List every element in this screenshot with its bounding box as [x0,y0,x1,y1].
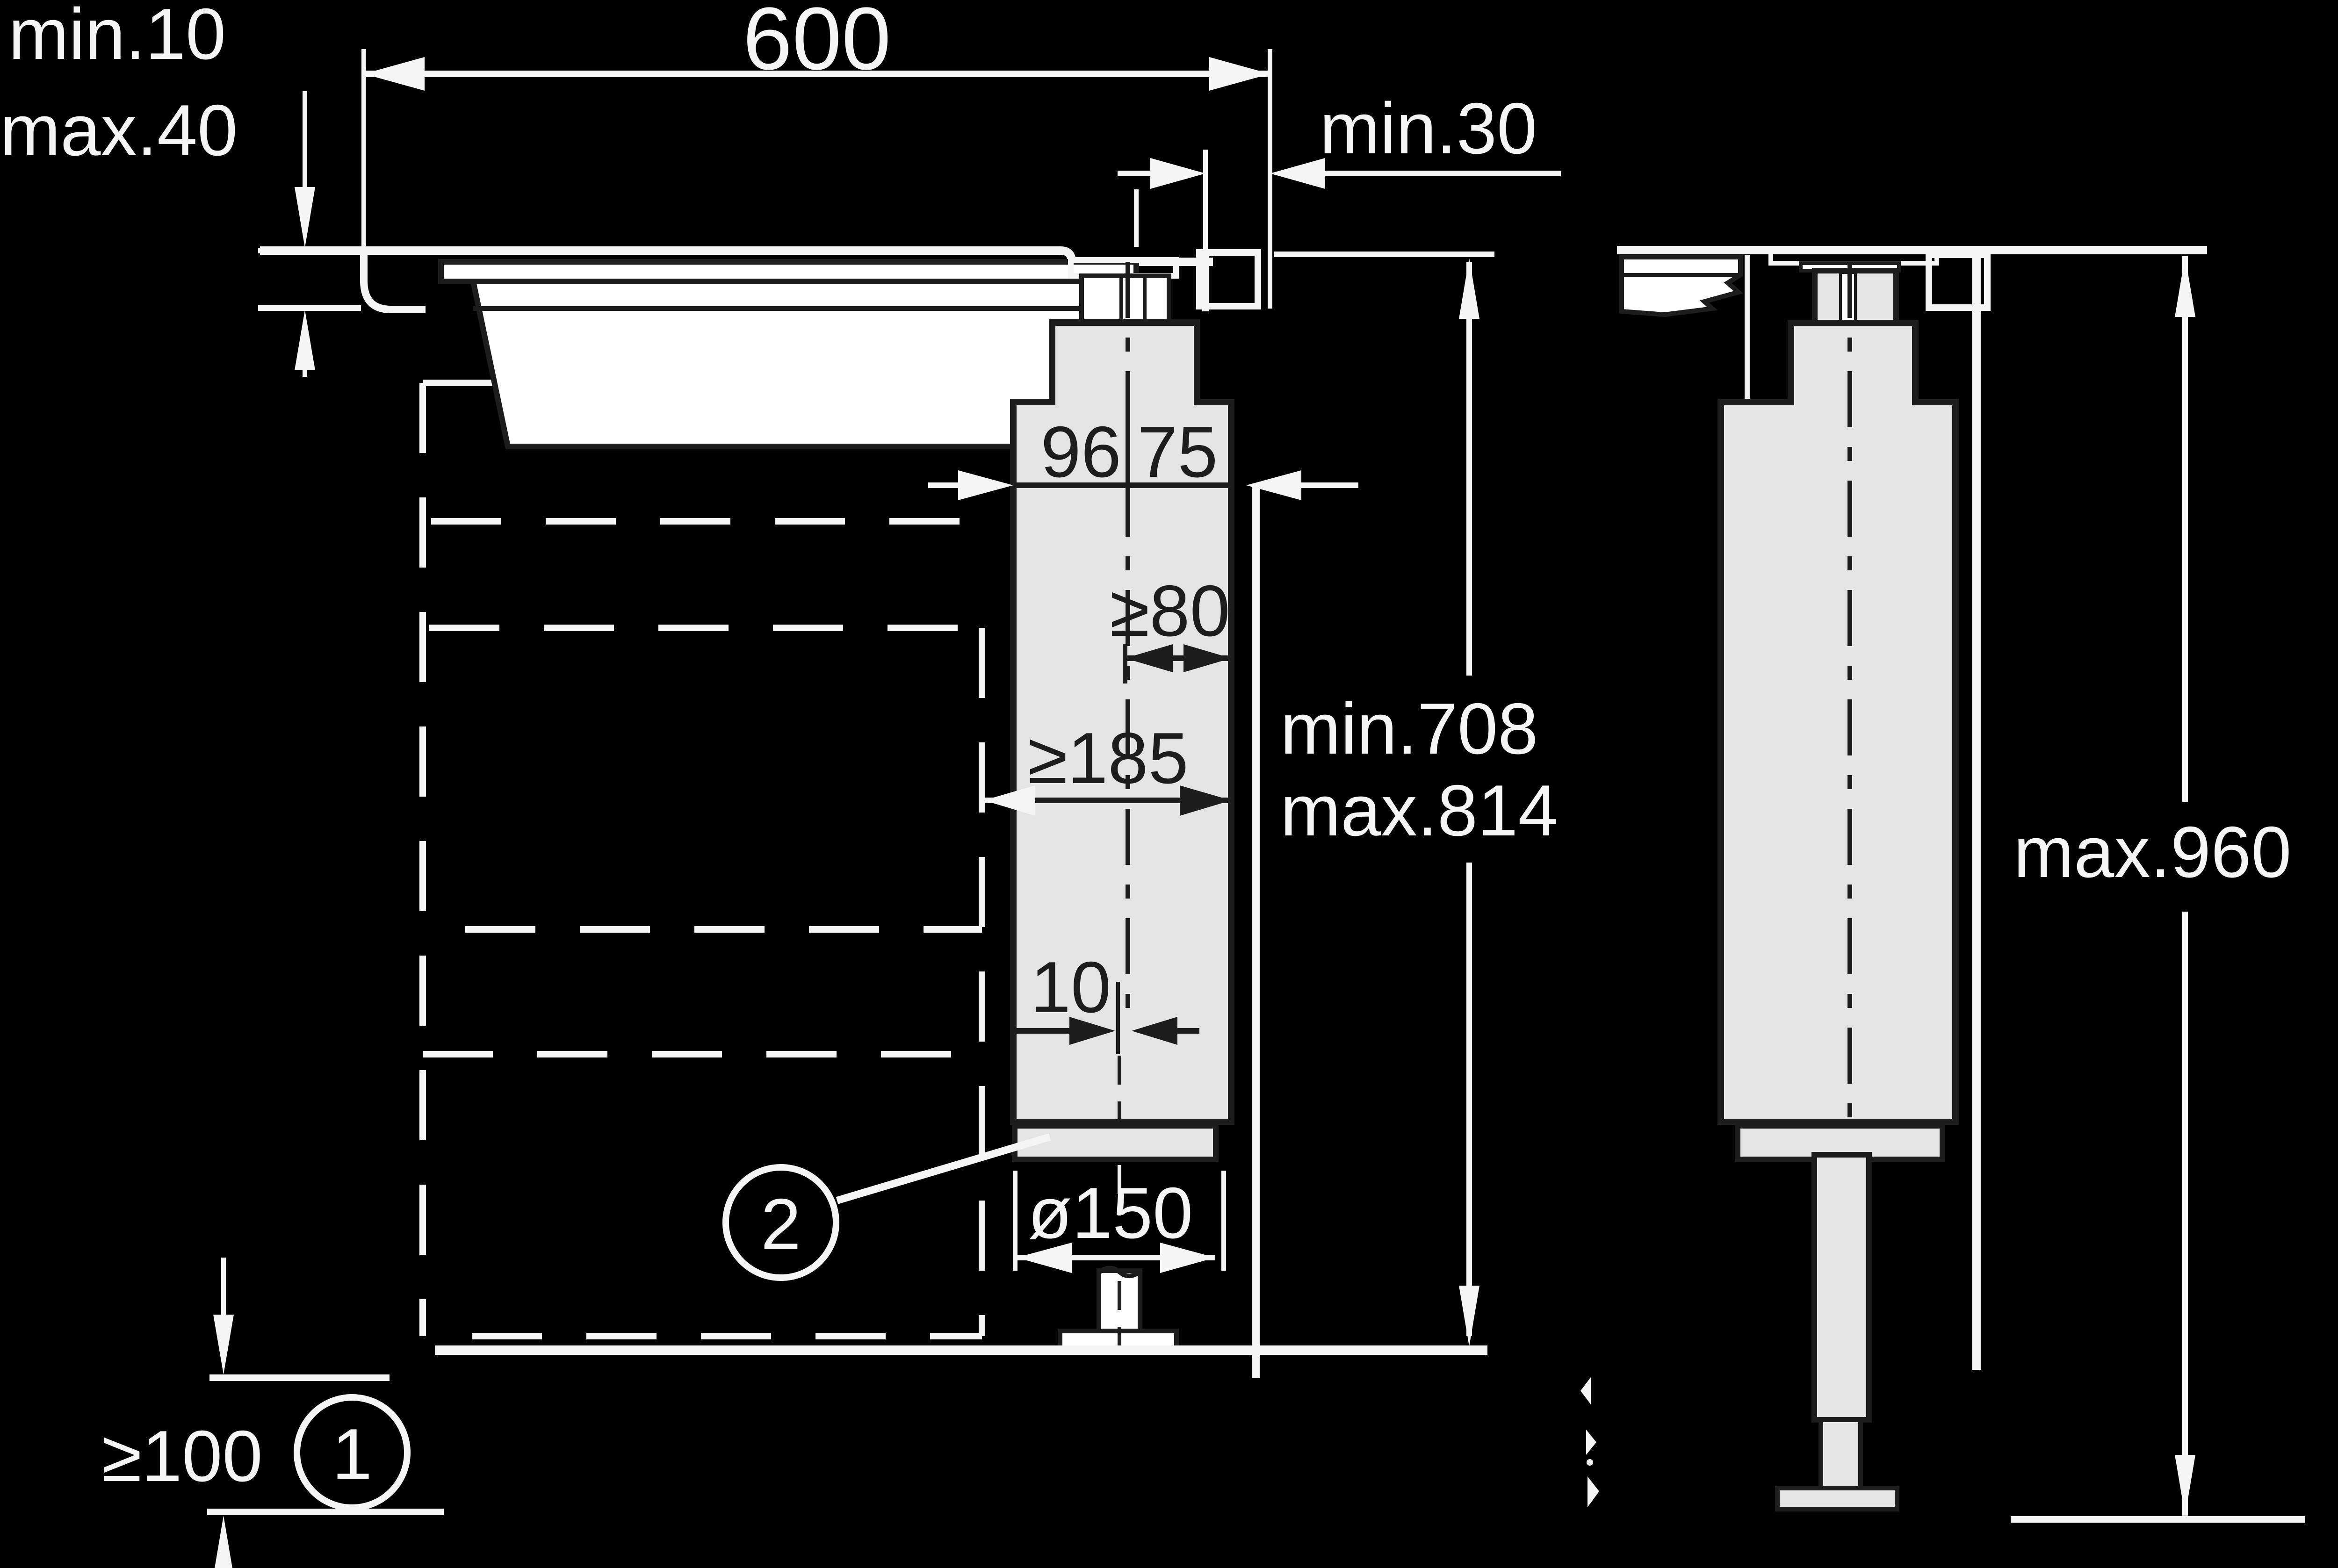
airflow-arrow-right-icon-2 [1588,1476,1599,1507]
dim-185-arrow-left [984,785,1035,816]
callout-2: 2 [726,1137,1050,1278]
dim-min30-arrow-right [1270,158,1325,189]
cabinet-dashed-outline [423,383,982,1336]
dim-min30-arrow-left [1150,158,1205,189]
dimension-install-height: min.708 max.814 [1274,254,1559,1346]
callout-2-label: 2 [761,1184,801,1265]
overall-height-arrow-down [2175,1455,2195,1516]
telescopic-leg-upper [1814,1155,1869,1420]
install-height-arrow-down [1459,1286,1479,1346]
callout-1-label: 1 [332,1414,372,1495]
dim-600-arrow-right [1209,57,1270,91]
dimension-plinth-height: ≥100 1 [102,1258,444,1568]
dim-600-arrow-left [364,57,425,91]
dim-min30-label: min.30 [1320,88,1537,169]
dim-185-label: ≥185 [1028,718,1189,798]
dim-10-label: 10 [1031,947,1111,1028]
duct-body-side [1721,323,1956,1122]
extractor-duct-side [1721,251,1987,1509]
install-height-arrow-up [1459,258,1479,319]
worktop-cutout-left-edge [364,252,426,309]
leg-foot-plate [1777,1488,1897,1509]
duct-neck [1082,276,1169,323]
install-height-min-label: min.708 [1280,688,1538,769]
dim-80-label: ≥80 [1110,570,1230,651]
plinth-airflow-arrows [1580,1377,1599,1507]
airflow-arrow-right-icon [1586,1430,1596,1455]
cooktop-body [473,281,1104,446]
dim-96-label: 96 [1041,411,1121,492]
dimension-overall-height: max.960 [2013,256,2292,1516]
recess-min-label: min.10 [8,0,226,74]
dim-600-label: 600 [743,0,891,88]
dimension-side-clearance: min.30 [1118,88,1561,256]
overall-height-label: max.960 [2013,812,2292,892]
recess-arrow-down [295,187,315,248]
duct-bottom-plate [1015,1126,1216,1159]
airflow-arrow-left-icon [1580,1377,1591,1404]
dim-75-label: 75 [1137,411,1218,492]
cooktop-flange [441,262,1136,281]
dim-9675-arrow-left [958,470,1013,500]
airflow-dot-icon [1587,1459,1593,1466]
side-section-view: max.960 [1580,250,2305,1519]
recess-max-label: max.40 [0,90,238,171]
front-section-view: 600 min.10 max.40 min.30 [0,0,1561,1568]
worktop-fragment-shape [1622,257,1740,315]
callout-2-leader-line [837,1137,1050,1201]
worktop-fragment-side [1622,257,1740,315]
dimension-recess-depth: min.10 max.40 [0,0,361,377]
install-height-max-label: max.814 [1280,770,1559,851]
plinth-min-label: ≥100 [102,1416,263,1496]
plinth-arrow-down [213,1315,234,1374]
duct-bottom-assembly: ø150 [1015,1126,1224,1349]
telescopic-leg-lower [1821,1420,1861,1488]
overall-height-arrow-up [2175,256,2195,317]
installation-diagram: 600 min.10 max.40 min.30 [0,0,2338,1568]
dim-150-label: ø150 [1028,1172,1193,1253]
recess-arrow-up [295,310,315,370]
